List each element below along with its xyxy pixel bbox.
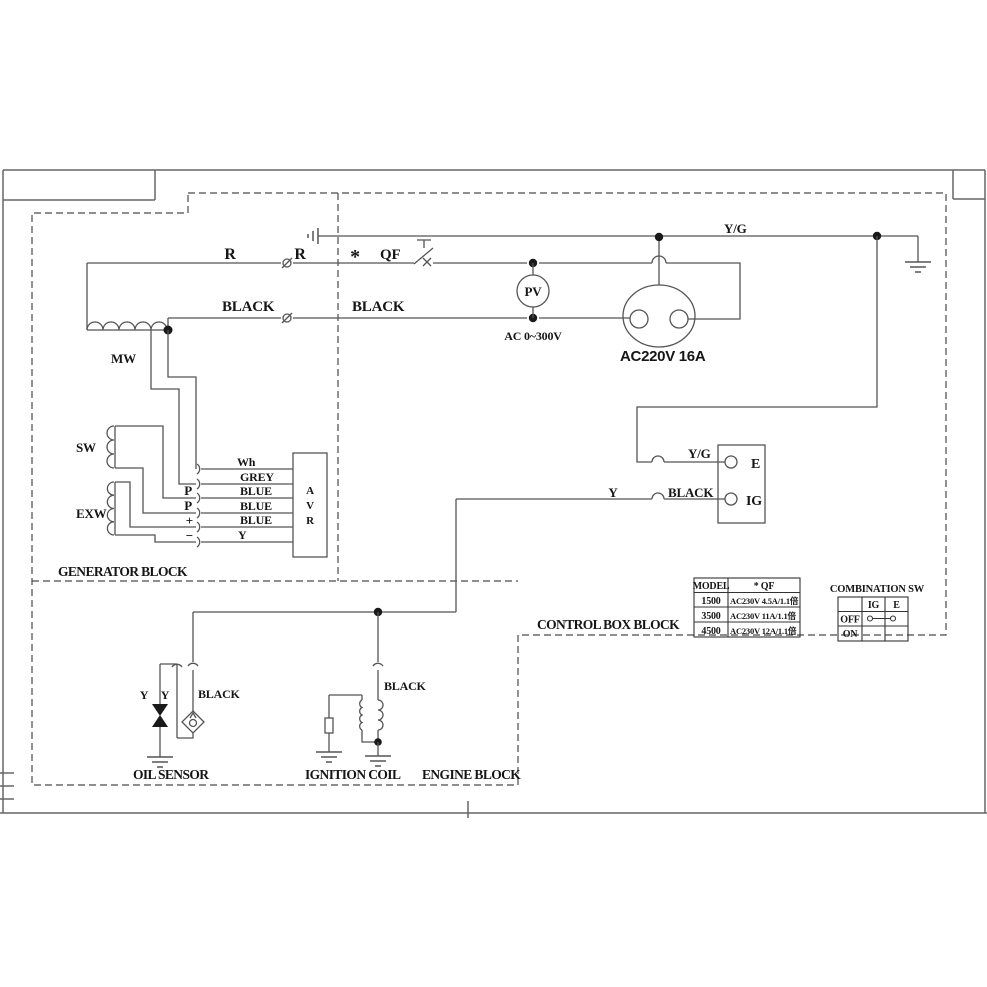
wire-label-blue2: BLUE (240, 499, 272, 513)
wire-label-black-ign: BLACK (384, 679, 427, 693)
wire-label-y: Y (238, 528, 247, 542)
connector-icon (172, 664, 182, 670)
wire-label-black-right: BLACK (352, 299, 405, 315)
connector-icon (652, 456, 664, 462)
wire-label-blue3: BLUE (240, 513, 272, 527)
wire-label-r-right: R (294, 246, 306, 263)
pin-label-p2: P (184, 498, 192, 513)
power-socket-icon (623, 237, 695, 347)
avr-letter-a: A (306, 485, 314, 497)
breaker-label: QF (380, 247, 400, 263)
wire-label-wh: Wh (237, 455, 256, 469)
model-table-cell: 1500 (701, 596, 720, 607)
wire-label-y-ig: Y (608, 485, 618, 500)
diode-icon (152, 704, 168, 727)
avr-letter-v: V (306, 500, 314, 512)
model-table-cell: AC230V 12A/1.1倍 (730, 626, 797, 636)
oil-sensor: Y Y BLACK OIL SENSOR (133, 612, 241, 782)
combination-sw-row-off: OFF (840, 615, 859, 626)
wire-label-blue1: BLUE (240, 484, 272, 498)
sheet-frame (0, 170, 987, 818)
model-table-cell: 3500 (701, 611, 720, 622)
combination-sw-row-on: ON (843, 629, 859, 640)
wire-label-r-left: R (224, 246, 236, 263)
combination-sw-table: COMBINATION SW IG E OFF ON (830, 584, 925, 641)
title-tab-left (3, 170, 155, 200)
combination-sw-title: COMBINATION SW (830, 584, 925, 595)
voltmeter-range: AC 0~300V (504, 329, 562, 343)
connector-icon (188, 663, 198, 666)
combination-sw-col-ig: IG (868, 600, 880, 611)
connector-icon (652, 493, 664, 499)
terminal-ig-icon (725, 493, 737, 505)
wire-label-black-left: BLACK (222, 299, 275, 315)
ground-icon (365, 756, 391, 766)
combination-sw-col-e: E (893, 600, 900, 611)
terminal-ig-label: IG (746, 494, 762, 509)
model-table-cell: AC230V 4.5A/1.1倍 (730, 596, 799, 606)
exw-coil-icon (107, 482, 115, 535)
wire-label-black-oil: BLACK (198, 687, 241, 701)
exw-label: EXW (76, 506, 107, 521)
voltmeter-label: PV (525, 284, 543, 299)
connector-icon (282, 258, 292, 268)
ground-icon (147, 757, 173, 767)
generator-block-label: GENERATOR BLOCK (58, 564, 188, 579)
engine-block-label: ENGINE BLOCK (422, 767, 521, 782)
circuit-breaker-icon (414, 240, 433, 266)
pin-label-p1: P (184, 483, 192, 498)
wire-label-yg: Y/G (724, 221, 747, 236)
model-table-header-model: MODEL (693, 581, 730, 592)
engine-block: Y Y BLACK OIL SENSOR BLAC (133, 612, 521, 782)
terminal-e-icon (725, 456, 737, 468)
avr-letter-r: R (306, 515, 315, 527)
breaker-star: * (350, 246, 360, 268)
model-table-cell: AC230V 11A/1.1倍 (730, 611, 796, 621)
control-box-label: CONTROL BOX BLOCK (537, 617, 680, 632)
pin-label-minus: − (186, 528, 193, 543)
ignition-coil-icon (360, 695, 383, 742)
ignition-coil-label: IGNITION COIL (305, 767, 401, 782)
sw-label: SW (76, 440, 96, 455)
pin-label-plus: + (186, 513, 193, 528)
wire-label-grey: GREY (240, 470, 274, 484)
wire-label-y1: Y (140, 688, 149, 702)
terminal-e-label: E (751, 457, 760, 472)
wire-label-y2: Y (161, 688, 170, 702)
model-table-header-qf: * QF (754, 581, 775, 592)
connector-icon (373, 663, 383, 666)
wire-label-yg-e: Y/G (688, 446, 711, 461)
mw-coil-icon (87, 322, 167, 330)
connector-icon (282, 313, 292, 323)
model-table: MODEL * QF 1500 AC230V 4.5A/1.1倍 3500 AC… (693, 578, 800, 637)
wiring-diagram-sheet: R R * QF BLACK BLACK Y/G PV AC 0~300V AC… (0, 0, 987, 987)
model-table-cell: 4500 (701, 626, 720, 637)
ground-icon (316, 752, 342, 762)
oil-sensor-icon (182, 711, 204, 733)
wire-label-black-ig: BLACK (668, 485, 714, 500)
ground-icon (905, 262, 931, 272)
ignition-coil: BLACK IGNITION COIL (305, 612, 427, 782)
socket-label: AC220V 16A (620, 348, 706, 365)
sw-coil-icon (107, 426, 115, 468)
switch-contact-icon (868, 616, 896, 621)
generator-block: A V R MW SW EXW Wh GREY BLUE BLUE BLUE Y… (58, 322, 327, 579)
power-circuit: R R * QF BLACK BLACK Y/G PV AC 0~300V AC… (87, 221, 931, 462)
spark-plug-icon (325, 718, 333, 733)
control-box-block: Y/G E IG Y BLACK CONTROL BOX BLOCK (193, 445, 765, 632)
title-tab-right (953, 170, 985, 199)
edge-ticks (0, 773, 14, 799)
ground-icon (308, 228, 318, 244)
mw-label: MW (111, 351, 136, 366)
oil-sensor-label: OIL SENSOR (133, 767, 209, 782)
